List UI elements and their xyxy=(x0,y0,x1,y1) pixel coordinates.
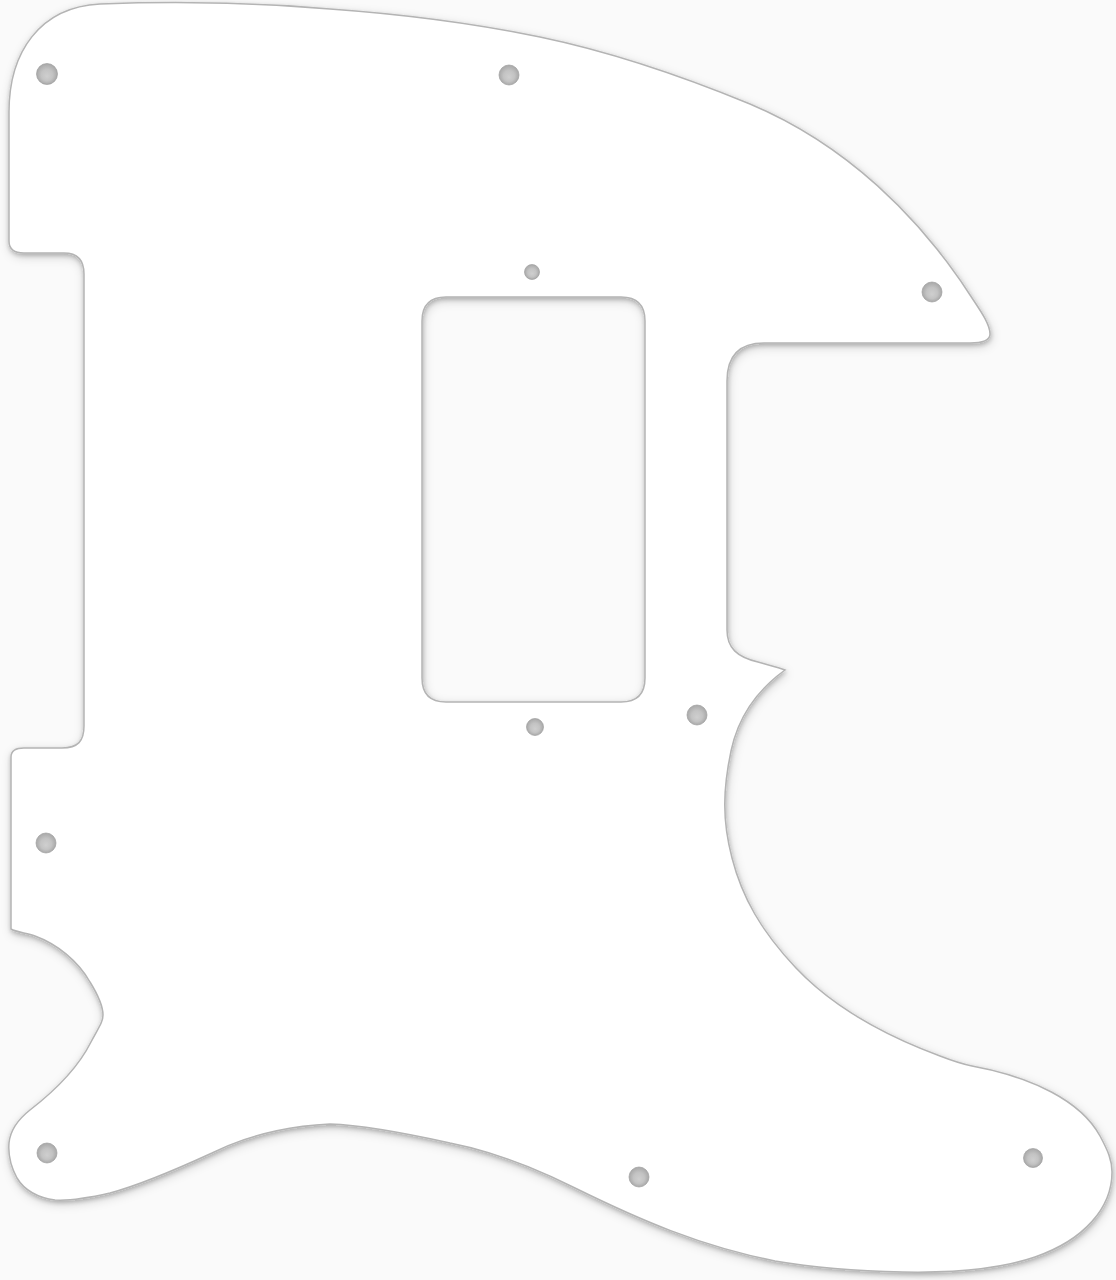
screw-hole xyxy=(36,833,56,853)
screw-hole xyxy=(37,1143,57,1163)
pickguard-graphic xyxy=(0,0,1116,1280)
screw-hole xyxy=(525,265,540,280)
screw-hole xyxy=(499,65,519,85)
screw-hole xyxy=(37,64,58,85)
screw-hole xyxy=(629,1167,649,1187)
screw-hole xyxy=(922,282,942,302)
screw-hole xyxy=(1024,1149,1043,1168)
screw-hole xyxy=(687,705,707,725)
product-image-canvas xyxy=(0,0,1116,1280)
screw-hole xyxy=(527,719,544,736)
